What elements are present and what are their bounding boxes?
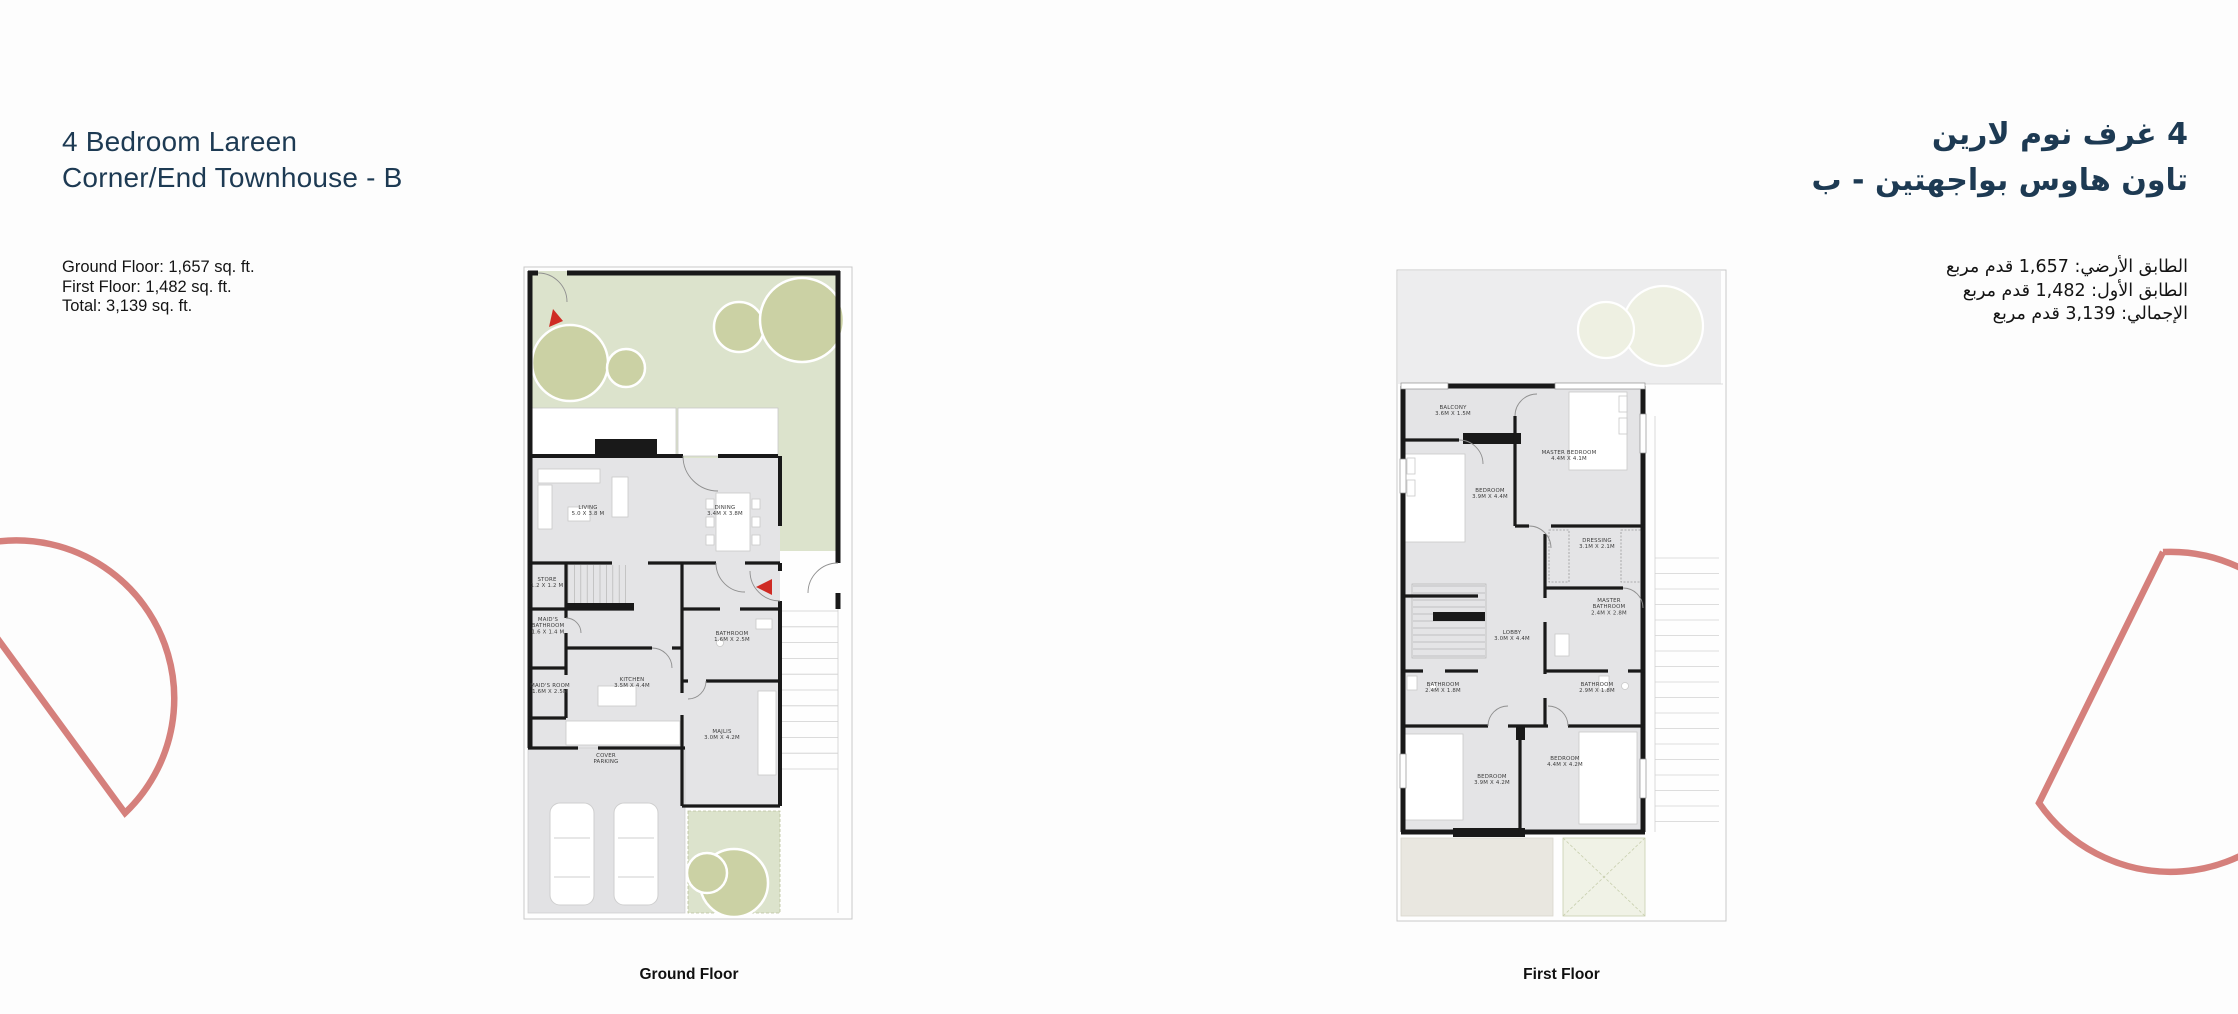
page-title-ar: 4 غرف نوم لارين تاون هاوس بواجهتين - ب <box>1811 112 2188 204</box>
room-label: BEDROOM3.9M X 4.4M <box>1472 488 1508 500</box>
title-line-1-ar: 4 غرف نوم لارين <box>1811 112 2188 158</box>
room-label: BALCONY3.6M X 1.5M <box>1435 405 1471 417</box>
ground-floor-caption: Ground Floor <box>520 966 858 984</box>
first-floor-caption: First Floor <box>1393 966 1730 984</box>
rear-garden-patch <box>687 811 780 917</box>
area-line: Ground Floor: 1,657 sq. ft. <box>62 258 255 278</box>
area-line: First Floor: 1,482 sq. ft. <box>62 278 255 298</box>
title-line-2: Corner/End Townhouse - B <box>62 160 402 196</box>
room-label: BATHROOM1.6M X 2.5M <box>714 631 750 643</box>
decorative-arc-right <box>2039 552 2238 872</box>
stair-landing-wall <box>1433 612 1485 621</box>
brochure-page: { "colors": { "navy": "#1d3a53", "text":… <box>0 0 2238 1014</box>
area-line: Total: 3,139 sq. ft. <box>62 297 255 317</box>
title-line-2-ar: تاون هاوس بواجهتين - ب <box>1811 158 2188 204</box>
area-summary-en: Ground Floor: 1,657 sq. ft. First Floor:… <box>62 258 255 317</box>
room-label: BATHROOM2.9M X 1.8M <box>1579 682 1615 694</box>
parking-roof <box>1401 838 1553 916</box>
room-label: BEDROOM3.9M X 4.2M <box>1474 774 1510 786</box>
first-floor-plan: BALCONY3.6M X 1.5MMASTER BEDROOM4.4M X 4… <box>1393 266 1730 925</box>
area-line-ar: الطابق الأول: 1,482 قدم مربع <box>1946 280 2188 304</box>
room-label: MAID'S ROOM1.6M X 2.5M <box>530 683 570 695</box>
room-label: BEDROOM4.4M X 4.2M <box>1547 756 1583 768</box>
room-label: DRESSING3.1M X 2.1M <box>1579 538 1615 550</box>
room-label: BATHROOM2.4M X 1.8M <box>1425 682 1461 694</box>
area-line-ar: الإجمالي: 3,139 قدم مربع <box>1946 303 2188 327</box>
page-title-en: 4 Bedroom Lareen Corner/End Townhouse - … <box>62 124 402 196</box>
pergola <box>1563 838 1645 916</box>
title-line-1: 4 Bedroom Lareen <box>62 124 402 160</box>
area-summary-ar: الطابق الأرضي: 1,657 قدم مربع الطابق الأ… <box>1946 256 2188 327</box>
ground-floor-plan: LIVING5.0 X 3.8 MDINING3.4M X 3.8MSTORE1… <box>520 263 858 925</box>
room-label: COVERPARKING <box>593 753 618 765</box>
area-line-ar: الطابق الأرضي: 1,657 قدم مربع <box>1946 256 2188 280</box>
decorative-arc-left <box>0 540 174 813</box>
